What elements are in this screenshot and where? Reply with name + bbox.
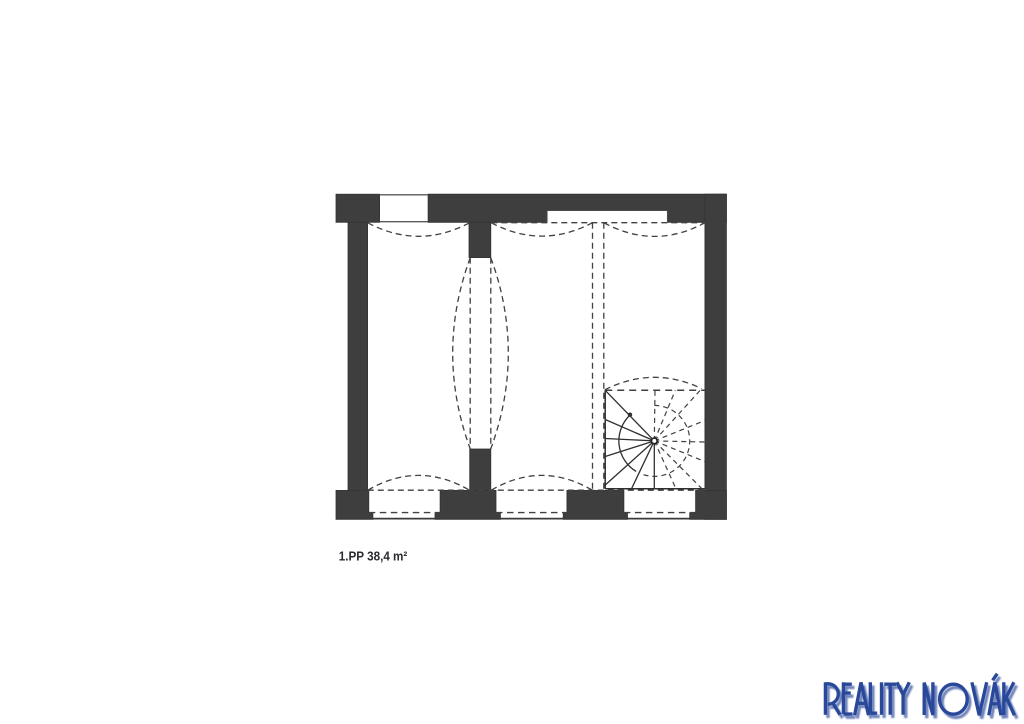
svg-text:1.PP 38,4 m²: 1.PP 38,4 m² [339, 549, 408, 563]
